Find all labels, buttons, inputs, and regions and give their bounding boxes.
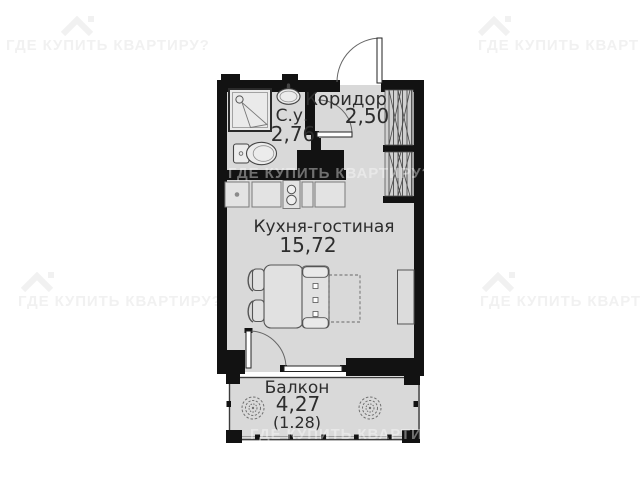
watermark-over-balcony: ГДЕ КУПИТЬ КВАРТИРУ?: [250, 426, 454, 443]
kitchen-counter: [225, 181, 345, 209]
watermark-over-plan: ГДЕ КУПИТЬ КВАРТИРУ?: [228, 165, 432, 182]
entry-door: [337, 38, 382, 83]
window: [284, 366, 342, 372]
floor-plan: С.у. 2,76 Коридор 2,50 Кухня-гостиная 15…: [0, 0, 640, 480]
room-area-kitchen-living: 15,72: [279, 233, 336, 257]
shower-icon: [229, 89, 271, 131]
tv-stand-icon: [398, 270, 415, 324]
dining-table-icon: [264, 265, 303, 328]
room-area-corridor: 2,50: [345, 104, 390, 128]
room-area-bathroom: 2,76: [271, 122, 316, 146]
floorplan-page: ГДЕ КУПИТЬ КВАРТИРУ? ГДЕ КУПИТЬ КВАРТИРУ…: [0, 0, 640, 480]
